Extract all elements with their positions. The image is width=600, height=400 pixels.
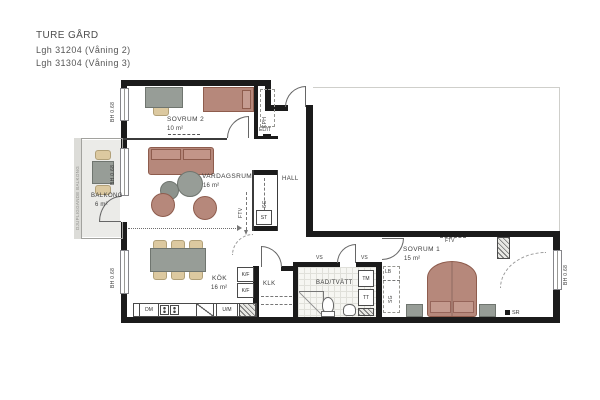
dining-table [150, 248, 206, 272]
balcony-door-opening [120, 196, 128, 222]
bed-pillow [430, 301, 451, 313]
closet-wall [252, 226, 278, 231]
bath-door-leaf [355, 244, 356, 263]
counter-end-cabinet [239, 303, 256, 317]
dm-label: DM [145, 307, 153, 313]
freezer: K/F [237, 283, 254, 298]
klk-door-arc [261, 246, 282, 267]
entry-door-leaf [305, 86, 306, 107]
opening-swing-arc [232, 234, 253, 255]
sliding-door [168, 134, 200, 135]
closet-wall [254, 136, 278, 139]
st-cabinet: ST [256, 210, 272, 225]
nightstand [479, 304, 496, 317]
closet-wall [254, 85, 258, 138]
closet-divider [383, 280, 400, 281]
balcony-note: DJUPLIGGANDE BALKONG [75, 150, 80, 230]
room-label-badtvatt: BAD/TVÄTT [316, 280, 353, 286]
sg-label: SG [262, 190, 268, 208]
sovrum1-door-arc [382, 238, 404, 260]
wall-klk-top [281, 266, 293, 271]
room-label-vardagsrum: VARDAGSRUM [202, 173, 252, 180]
wall-bottom [121, 317, 560, 323]
kf-label: K/F [242, 288, 250, 294]
room-area-sovrum2: 10 m² [167, 126, 183, 132]
kph-label: KPH [262, 104, 268, 128]
window-sovrum1 [553, 250, 562, 290]
lb-label: LB [385, 269, 391, 275]
building-outline [559, 87, 560, 232]
sill-height-label: BH 0.68 [110, 92, 116, 122]
bed-pillow [242, 90, 251, 109]
closet-wall [252, 170, 254, 231]
sovrum2-door-leaf [248, 116, 249, 138]
washing-machine: TM [358, 270, 374, 287]
project-title: TURE GÅRD [36, 30, 99, 41]
wall-sovrum1-west [376, 262, 382, 317]
wall-corridor-top [306, 231, 560, 237]
ftv-line [246, 192, 247, 230]
wall-sovrum2-divider [123, 138, 227, 140]
ftv-label-sovrum1: FTV [445, 238, 454, 244]
sovrum2-door-arc [227, 116, 249, 138]
tumble-dryer: TT [358, 289, 374, 306]
sill-height-label: BH 0.68 [110, 155, 116, 185]
building-outline [313, 87, 560, 88]
room-area-kok: 16 m² [211, 285, 227, 291]
armchair [151, 193, 175, 217]
klk-shelf [261, 296, 292, 297]
sill-height-label: BH 0.68 [563, 255, 569, 285]
window-balcony [120, 148, 129, 196]
desk [145, 87, 183, 108]
tm-label: TM [362, 276, 369, 282]
room-label-balkong: BALKONG [91, 193, 123, 199]
hob-burner [160, 305, 169, 315]
fridge: K/F [237, 267, 254, 282]
boundary-arrow [237, 225, 242, 231]
sofa-cushion [151, 149, 181, 160]
wall-hall-right [306, 105, 313, 237]
pouf-large [177, 171, 203, 197]
tt-label: TT [363, 295, 369, 301]
wardrobe [497, 237, 510, 259]
apartment-line-1: Lgh 31204 (Våning 2) [36, 45, 131, 55]
wall-top [121, 80, 271, 86]
vs-shaft [361, 262, 372, 267]
armchair [193, 196, 217, 220]
nightstand [406, 304, 423, 317]
room-label-sovrum2: SOVRUM 2 [167, 116, 204, 123]
floor-plan: TURE GÅRD Lgh 31204 (Våning 2) Lgh 31304… [0, 0, 600, 400]
closet-wall [252, 170, 278, 175]
kitchen-sink [196, 303, 214, 317]
sovrum1-door-leaf [382, 238, 404, 239]
klk-shelf [261, 304, 292, 305]
apartment-line-2: Lgh 31304 (Våning 3) [36, 58, 131, 68]
ftv-label-hall: FTV [238, 196, 244, 218]
sr-label: SR [512, 310, 520, 316]
room-label-hall: HALL [282, 176, 299, 182]
vs-shaft [316, 262, 327, 267]
room-area-vardagsrum: 16 m² [203, 183, 219, 189]
toilet-tank [321, 311, 335, 317]
entry-door-arc [285, 86, 306, 107]
vs-label: VS [361, 255, 368, 261]
kf-label: K/F [242, 272, 250, 278]
bathroom-sink [343, 304, 356, 316]
room-boundary-line [128, 228, 236, 229]
room-area-sovrum1: 15 m² [404, 256, 420, 262]
bath-cabinet [358, 308, 374, 316]
hob-burner [170, 305, 179, 315]
vs-label: VS [316, 255, 323, 261]
closet-wall [277, 170, 279, 231]
dishwasher: DM [139, 303, 159, 317]
window-sovrum2 [120, 88, 129, 121]
room-label-sovrum1: SOVRUM 1 [403, 246, 440, 253]
sofa-cushion [183, 149, 211, 160]
sg-label-sovrum1: SG [388, 285, 394, 303]
bed-pillow [453, 301, 474, 313]
klk-door-leaf [261, 246, 262, 267]
balcony-door-leaf [99, 221, 121, 222]
elit-marker [263, 134, 271, 137]
room-area-balkong: 6 m² [95, 202, 108, 208]
window-kitchen [120, 250, 129, 294]
elit-label: EL/IT [259, 127, 271, 133]
room-label-kok: KÖK [212, 275, 227, 282]
oven-micro: U/M [216, 303, 238, 317]
room-label-klk: KLK [263, 281, 276, 287]
st-label: ST [261, 215, 267, 221]
bath-door-arc [337, 244, 356, 263]
balcony-chair [95, 150, 111, 160]
sill-height-label: BH 0.68 [110, 258, 116, 288]
um-label: U/M [222, 307, 231, 313]
sr-marker [505, 310, 510, 315]
